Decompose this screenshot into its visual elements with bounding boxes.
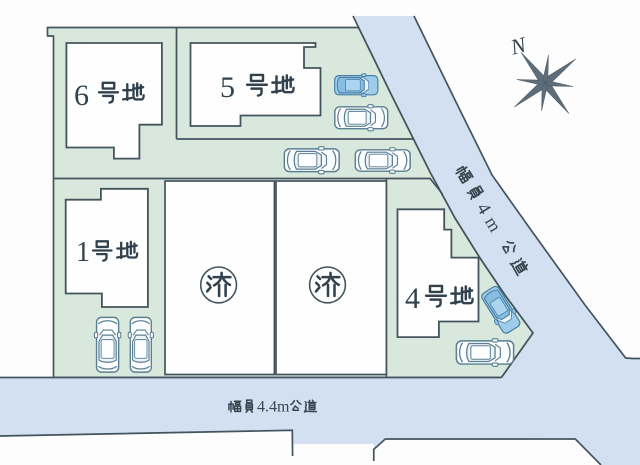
svg-text:5: 5 [220, 71, 235, 104]
svg-text:4.4m: 4.4m [257, 399, 290, 416]
svg-text:1: 1 [76, 237, 90, 268]
svg-text:4: 4 [405, 282, 420, 315]
svg-text:6: 6 [74, 79, 89, 112]
